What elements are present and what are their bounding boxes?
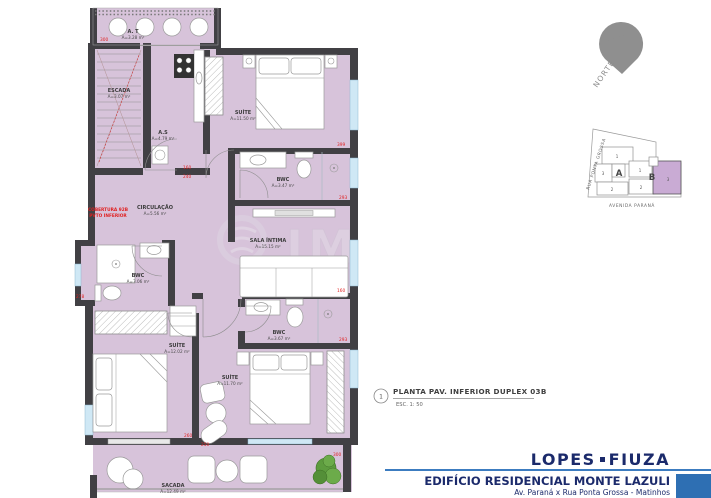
title-block: LOPESFIUZA EDIFÍCIO RESIDENCIAL MONTE LA… [0,0,711,498]
building-address: Av. Paraná x Rua Ponta Grossa - Matinhos [514,488,670,497]
brand-accent-square [676,474,711,498]
brand-logo-left: LOPES [531,450,596,469]
logo-dot-icon [600,457,605,462]
brand-logo: LOPESFIUZA [531,450,670,469]
title-rule [385,469,711,471]
architectural-sheet: IM [0,0,711,498]
building-name: EDIFÍCIO RESIDENCIAL MONTE LAZULI [424,474,670,488]
brand-logo-right: FIUZA [609,450,670,469]
